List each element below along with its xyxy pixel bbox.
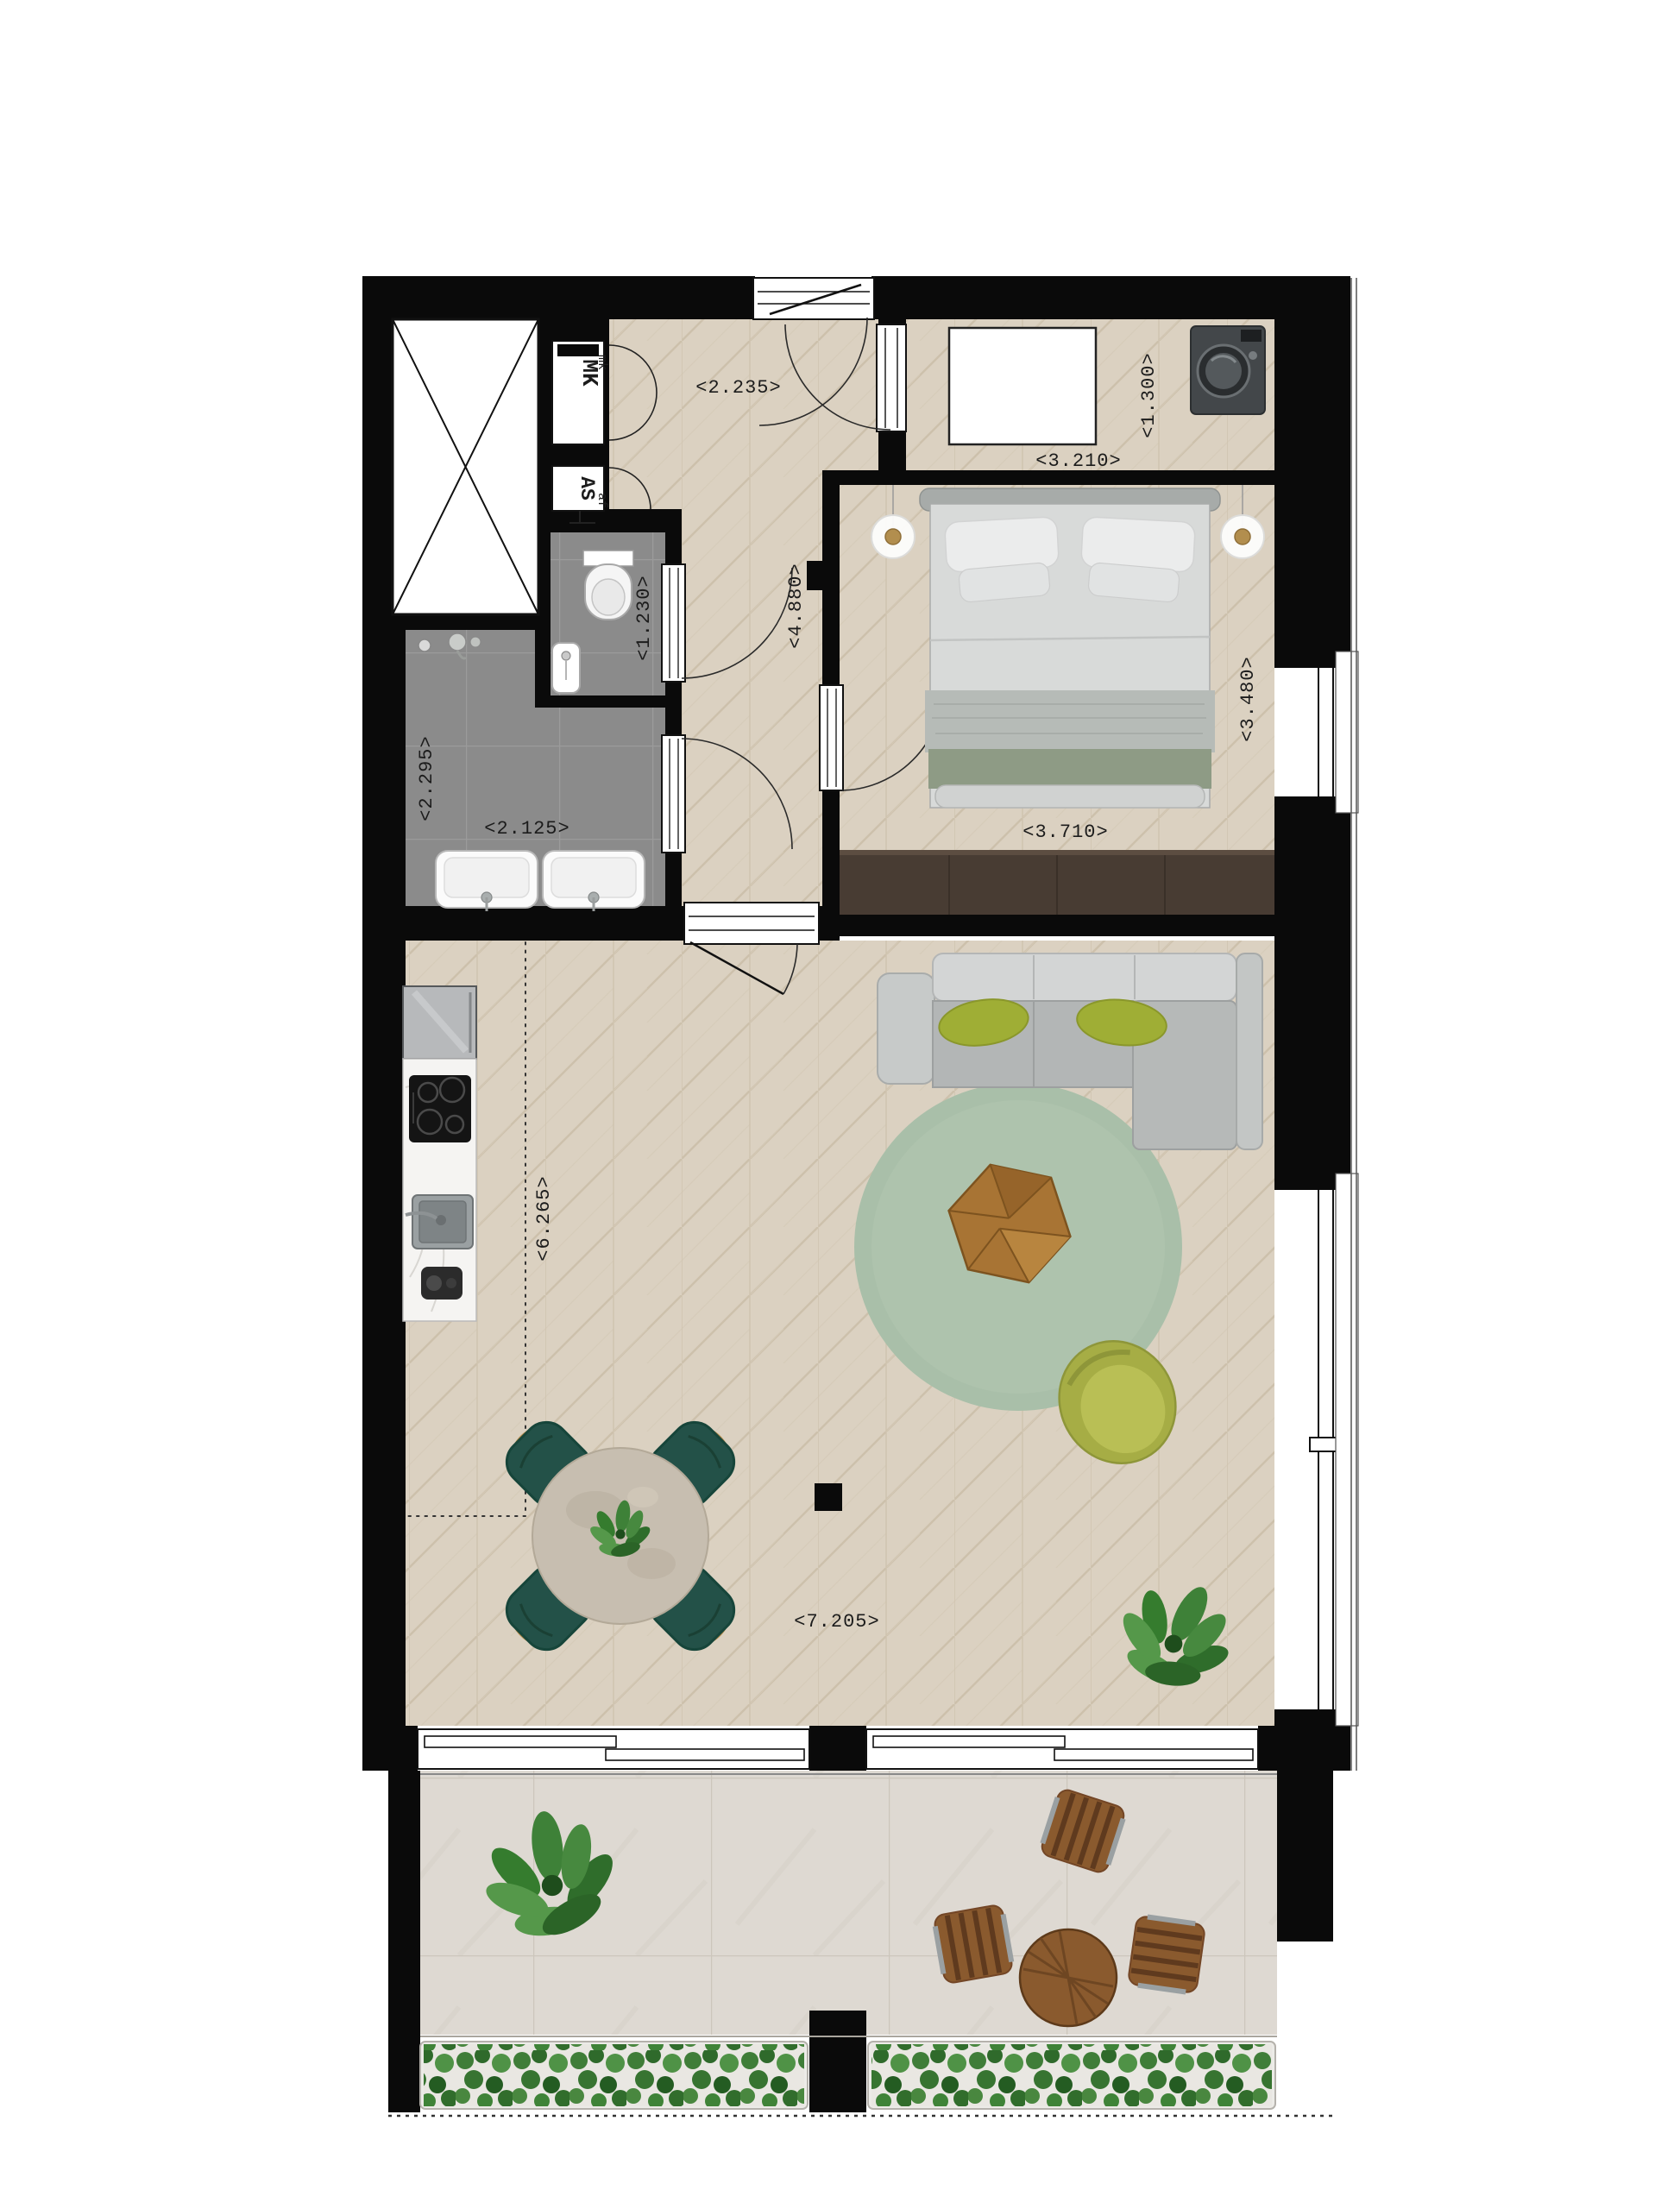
sofa-armrest-left — [878, 973, 934, 1084]
wall-bedroom-top — [822, 470, 1274, 485]
bedroom-window-sill — [1336, 651, 1358, 813]
bed — [920, 488, 1220, 808]
living-window-sill — [1336, 1174, 1358, 1726]
coffee-machine — [421, 1267, 462, 1300]
meter-cupboard-label-small: mk — [595, 355, 609, 370]
washer-panel — [1241, 330, 1262, 342]
dim-bathroom-width: <2.125> — [484, 818, 569, 840]
fridge — [403, 986, 476, 1059]
wall-right-upper — [1274, 276, 1350, 662]
planter-plants — [424, 2044, 804, 2106]
kitchen-sink — [406, 1195, 473, 1249]
toilet — [583, 551, 633, 620]
wall-bath-top — [362, 614, 538, 630]
dim-hall-width: <2.235> — [695, 377, 781, 399]
bed-foot-roll — [935, 785, 1205, 808]
laundry-cupboard — [949, 328, 1096, 444]
bathroom-sink — [543, 851, 645, 911]
balcony-floor — [420, 1771, 1277, 2035]
wall-balcony-right — [1277, 1771, 1333, 1942]
wall-bath-hall-2 — [665, 682, 682, 735]
dim-hall-length: <4.880> — [785, 563, 807, 648]
dim-living-width: <7.205> — [794, 1611, 879, 1633]
bathroom-sink — [436, 851, 538, 911]
dim-wc-width: <1.230> — [633, 575, 655, 660]
bed-throw — [925, 690, 1215, 752]
wall-bath-bottom — [362, 906, 686, 941]
wall-wc-bottom — [535, 695, 665, 708]
bedroom-window — [1274, 651, 1358, 813]
meter-block-icon — [557, 344, 599, 356]
bed-blanket-green — [928, 749, 1211, 789]
planter-plants — [871, 2044, 1272, 2106]
bistro-chair — [934, 1904, 1014, 1985]
apartment-floorplan: MK mk AS af — [0, 0, 1680, 2209]
shower-drain-icon — [418, 639, 431, 651]
shaft-label-small: af — [595, 493, 609, 508]
wardrobe — [840, 850, 1274, 915]
dim-laundry-width: <3.210> — [1035, 450, 1121, 472]
wall-top-left — [362, 276, 755, 319]
sofa-back — [933, 953, 1236, 1001]
floorplan-page: MK mk AS af — [0, 0, 1680, 2209]
wall-bath-hall-3 — [665, 853, 682, 906]
bistro-chair — [1128, 1916, 1205, 1993]
wall-balcony-pier — [809, 2011, 866, 2112]
wc-washbasin — [552, 643, 580, 693]
wall-bedroom-bottom — [822, 915, 1274, 936]
structural-column — [815, 1483, 842, 1511]
dim-bathroom-length: <2.295> — [416, 735, 437, 821]
wall-south-left — [362, 1726, 418, 1771]
dim-kitchen-zone: <6.265> — [533, 1175, 555, 1261]
wall-balcony-left — [388, 1771, 420, 2112]
wall-bath-hall-1 — [665, 509, 682, 564]
wall-wc-top — [535, 509, 682, 532]
dim-bedroom-depth: <3.480> — [1237, 656, 1259, 741]
dim-bedroom-width: <3.710> — [1022, 821, 1108, 843]
washing-machine — [1191, 326, 1265, 414]
wall-south-right — [1258, 1726, 1350, 1771]
wall-laundry-below-door — [878, 430, 906, 470]
wall-bedroom-left-lower — [822, 790, 840, 915]
wall-right-mid — [1274, 802, 1350, 1184]
living-window — [1274, 1174, 1358, 1726]
cooktop — [409, 1075, 471, 1142]
wall-south-pier — [809, 1726, 866, 1771]
dining-set — [498, 1413, 744, 1659]
wall-stub-hall — [807, 561, 840, 590]
sofa-armrest-right — [1236, 953, 1262, 1149]
dim-laundry-depth: <1.300> — [1138, 352, 1160, 437]
